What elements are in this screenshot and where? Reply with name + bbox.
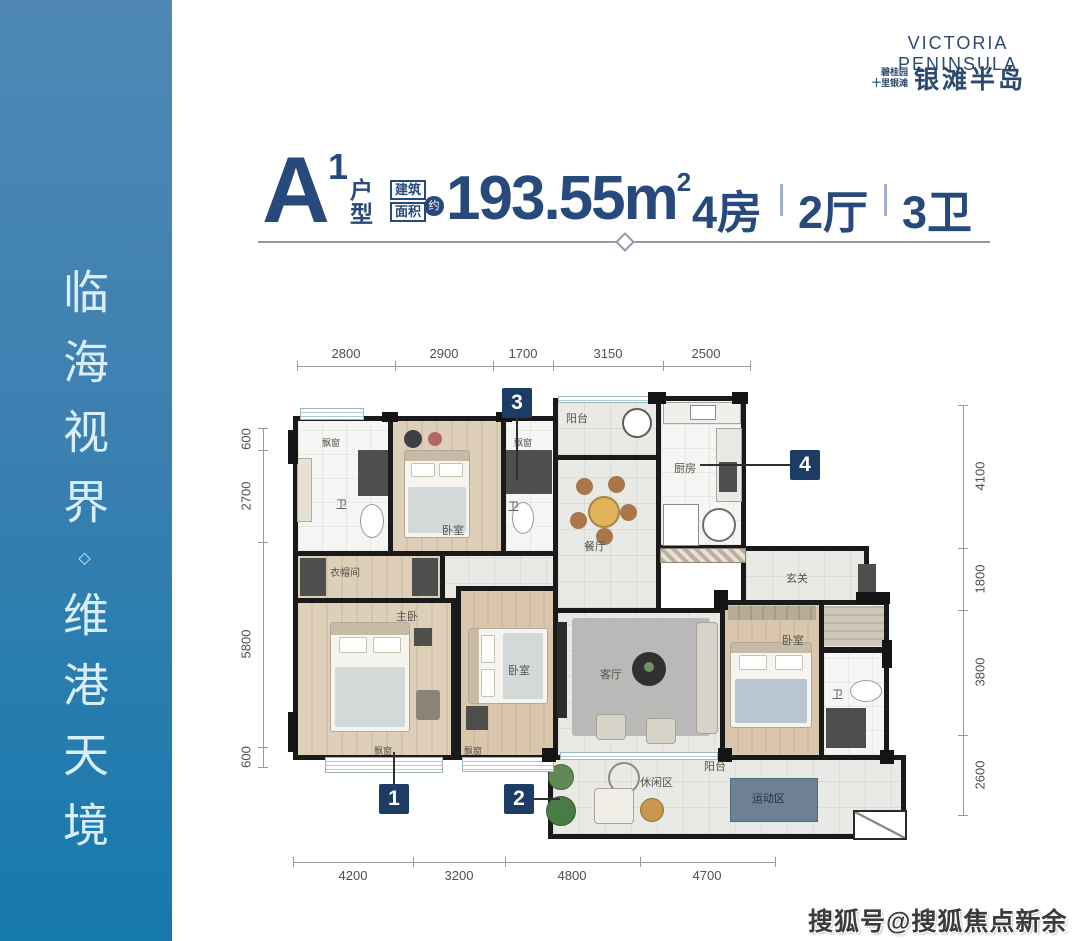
label-balcony-bottom: 阳台	[704, 758, 726, 774]
wall-block	[714, 590, 728, 610]
master-bed	[330, 622, 410, 732]
vertical-slogan: 临海视界◇维港天境	[60, 268, 106, 871]
wall-block	[288, 712, 298, 752]
slogan-part2: 维港天境	[57, 591, 109, 871]
sidebar: 临海视界◇维港天境	[0, 0, 172, 941]
brand-tagline: 碧桂园 十里银滩	[872, 67, 908, 89]
dim-bottom-1: 4200	[323, 868, 383, 883]
living-armchair	[646, 718, 676, 744]
bath-1-cabinet	[358, 450, 388, 496]
brand-tagline-line1: 碧桂园	[872, 67, 908, 78]
bath-1-toilet	[360, 504, 384, 538]
label-bath-1: 卫	[336, 496, 347, 512]
wall-block	[382, 412, 398, 422]
balcony-door-glass	[560, 752, 718, 760]
dim-top-4: 3150	[578, 346, 638, 361]
wall-block	[880, 750, 894, 764]
label-bath-3: 卫	[832, 686, 843, 702]
living-sofa	[696, 622, 718, 734]
bedroom-right-bed	[730, 642, 812, 728]
spec-separator-1	[780, 184, 783, 216]
dim-right-1: 4100	[973, 462, 988, 491]
wall-block	[732, 392, 748, 404]
spec-rooms: 4房	[692, 176, 762, 241]
wall-block	[542, 748, 556, 762]
title-divider-diamond	[615, 232, 635, 252]
marker-2-leader	[534, 798, 560, 800]
kitchen-fridge	[663, 504, 699, 546]
dining-table	[588, 496, 620, 528]
floorplan-poster: 临海视界◇维港天境 VICTORIA PENINSULA 碧桂园 十里银滩 银滩…	[0, 0, 1080, 941]
label-master-bedroom: 主卧	[396, 608, 418, 624]
marker-4-leader	[700, 464, 790, 466]
closet-wardrobe-right	[412, 558, 438, 596]
watermark: 搜狐号@搜狐焦点新余站	[808, 902, 1080, 941]
plan-letter-sup: 1	[328, 146, 348, 188]
wall-block	[882, 640, 892, 668]
dim-bottom-3: 4800	[542, 868, 602, 883]
area-label-box: 建筑 面积	[390, 180, 426, 222]
plan-letter: A	[262, 150, 330, 230]
label-sport-zone: 运动区	[752, 790, 785, 806]
dim-top-1: 2800	[316, 346, 376, 361]
area-number: 193.55m	[446, 164, 677, 233]
marker-3-leader	[516, 418, 518, 480]
label-balcony-top: 阳台	[566, 410, 588, 426]
brand-name-cn: 银滩半岛	[914, 60, 1026, 96]
kitchen-stove	[719, 462, 737, 492]
dim-line-bottom	[293, 862, 775, 863]
balcony-side-table	[640, 798, 664, 822]
dim-top-5: 2500	[676, 346, 736, 361]
spec-separator-2	[884, 184, 887, 216]
closet-right-shelves	[824, 606, 884, 646]
label-leisure-zone: 休闲区	[640, 774, 673, 790]
marker-2: 2	[504, 784, 534, 814]
dining-chair	[570, 512, 587, 529]
dining-chair	[576, 478, 593, 495]
plan-type-label: 户 型	[350, 178, 373, 226]
utility-box	[853, 810, 907, 840]
bath-1-vanity	[297, 458, 312, 522]
label-kitchen: 厨房	[674, 460, 696, 476]
living-armchair	[596, 714, 626, 740]
label-bedroom-mid: 卧室	[508, 662, 530, 678]
dim-right-2: 1800	[973, 565, 988, 594]
kitchen-sink	[690, 405, 716, 420]
dim-top-3: 1700	[493, 346, 553, 361]
area-value: 193.55m2	[446, 163, 691, 234]
dim-left-2: 2700	[239, 482, 254, 511]
bath-3-shower	[826, 708, 866, 748]
area-unit-sup: 2	[677, 167, 691, 197]
master-chair	[416, 690, 440, 720]
living-tv-wall	[557, 622, 567, 718]
dim-bottom-2: 3200	[429, 868, 489, 883]
slogan-part1: 临海视界	[57, 268, 109, 548]
plan-type-char1: 户	[350, 178, 373, 202]
dim-left-4: 600	[239, 746, 254, 768]
label-closet: 衣帽间	[330, 564, 360, 579]
flower-pot	[428, 432, 442, 446]
area-label-line2: 面积	[390, 202, 426, 222]
closet-wardrobe-left	[300, 558, 326, 596]
wall-block	[288, 430, 298, 464]
dim-left-3: 5800	[239, 630, 254, 659]
label-bay-window-1: 飘窗	[322, 436, 340, 449]
label-bedroom-right: 卧室	[782, 632, 804, 648]
bedroom-mid-desk	[466, 706, 488, 730]
dining-chair	[608, 476, 625, 493]
dining-chair	[620, 504, 637, 521]
bedroom-right-wardrobe	[728, 606, 816, 620]
bay-window-mid	[462, 757, 554, 772]
label-bay-window-3: 飘窗	[374, 744, 392, 757]
marker-1-leader	[393, 752, 395, 784]
kitchen-washer	[702, 508, 736, 542]
master-nightstand	[414, 628, 432, 646]
wall-block	[856, 592, 890, 604]
wall-block	[648, 392, 666, 404]
marker-4: 4	[790, 450, 820, 480]
label-dining: 餐厅	[584, 538, 606, 554]
spec-halls: 2厅	[798, 176, 868, 241]
dim-top-2: 2900	[414, 346, 474, 361]
brand-logo: 碧桂园 十里银滩 银滩半岛	[872, 60, 1026, 96]
dim-line-left	[263, 428, 264, 767]
spec-baths: 3卫	[902, 176, 972, 241]
label-bay-window-4: 飘窗	[464, 744, 482, 757]
plan-type-char2: 型	[350, 202, 373, 226]
bay-window-top-left	[300, 408, 364, 420]
label-bath-2: 卫	[508, 498, 519, 514]
entry-hatch-strip	[660, 548, 746, 563]
dim-bottom-4: 4700	[677, 868, 737, 883]
top-balcony-glass	[558, 396, 658, 403]
lounge-chair	[594, 788, 634, 824]
dim-left-1: 600	[239, 428, 254, 450]
bath-2-cabinet	[506, 450, 552, 494]
marker-1: 1	[379, 784, 409, 814]
area-approx-badge: 约	[424, 196, 444, 216]
brand-tagline-line2: 十里银滩	[872, 78, 908, 89]
bath-3-toilet	[850, 680, 882, 702]
plant-pot	[404, 430, 422, 448]
dim-right-3: 3800	[973, 658, 988, 687]
diamond-icon: ◇	[75, 548, 92, 591]
dim-right-4: 2600	[973, 761, 988, 790]
balcony-top-washer	[622, 408, 652, 438]
balcony-plant	[546, 796, 576, 826]
bay-window-master	[325, 757, 443, 773]
marker-3: 3	[502, 388, 532, 418]
area-label-line1: 建筑	[390, 180, 426, 200]
label-foyer: 玄关	[786, 570, 808, 586]
dim-line-top	[297, 366, 750, 367]
label-bedroom-top: 卧室	[442, 522, 464, 538]
label-living: 客厅	[600, 666, 622, 682]
living-table-plant	[644, 662, 654, 672]
